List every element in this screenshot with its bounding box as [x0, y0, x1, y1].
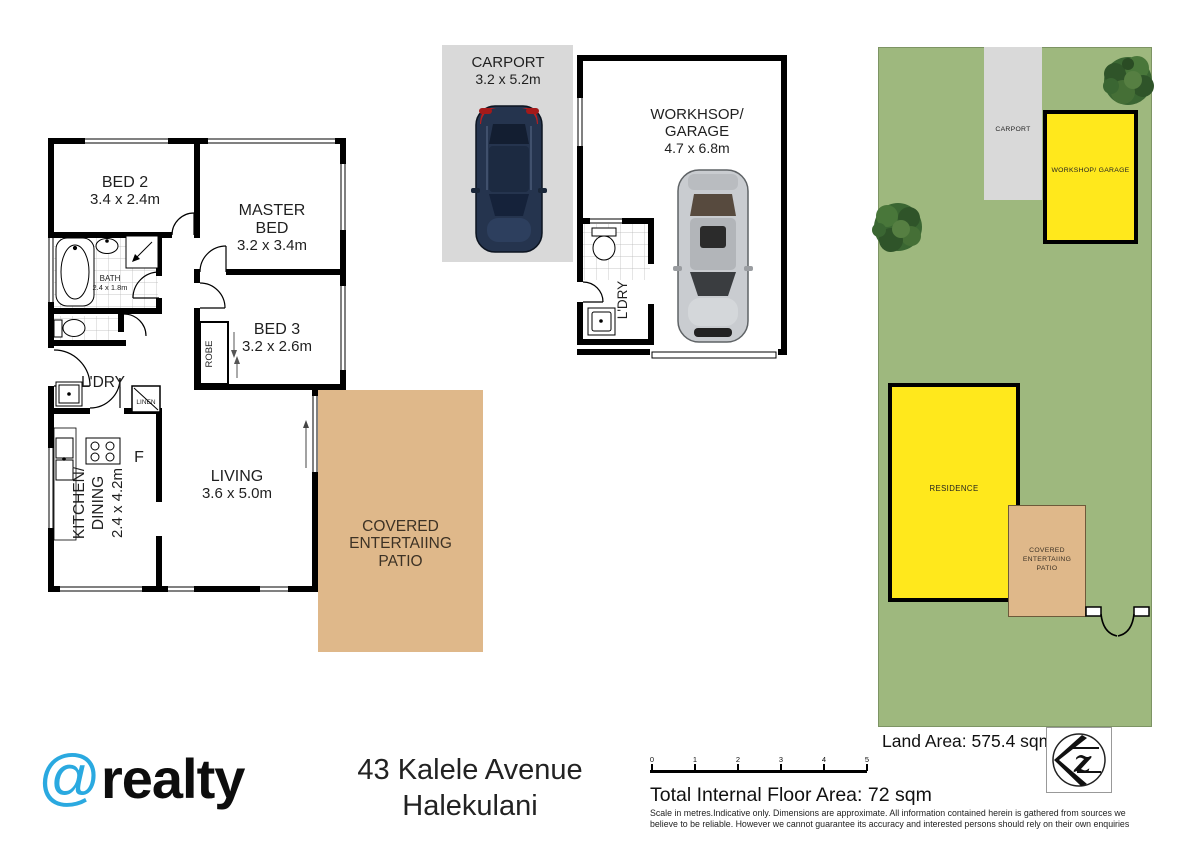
garage-laundry-label: L'DRY: [615, 270, 631, 330]
land-area: Land Area: 575.4 sqm: [882, 731, 1053, 752]
address-line2: Halekulani: [320, 788, 620, 824]
address-line1: 43 Kalele Avenue: [320, 752, 620, 788]
tree-icon: [867, 196, 929, 258]
car-silver-top-view: [673, 170, 753, 342]
gate-symbol: [1082, 603, 1152, 643]
kitchen-dining-label: KITCHEN/ DINING 2.4 x 4.2m: [70, 448, 140, 558]
garage-plan: CARPORT 3.2 x 5.2m WORKHSOP/ GARAGE 4.7 …: [440, 40, 790, 362]
site-covered-patio: COVERED ENTERTAIING PATIO: [1008, 505, 1086, 617]
workshop-garage-label: WORKHSOP/ GARAGE 4.7 x 6.8m: [637, 107, 757, 156]
bed3-label: BED 3 3.2 x 2.6m: [217, 321, 337, 356]
realty-at-icon: @: [38, 743, 101, 812]
carport-label: CARPORT 3.2 x 5.2m: [447, 55, 569, 87]
patio-label: COVERED ENTERTAIING PATIO: [326, 518, 475, 570]
site-plan: CARPORT WORKSHOP/ GARAGE RESIDENCE COVER…: [878, 47, 1152, 727]
scale-bar: 0 1 2 3 4 5: [650, 755, 870, 777]
site-residence: RESIDENCE: [888, 383, 1020, 602]
tree-icon: [1097, 50, 1159, 112]
disclaimer-line1: Scale in metres.Indicative only. Dimensi…: [650, 808, 1155, 818]
site-workshop-garage: WORKSHOP/ GARAGE: [1043, 110, 1138, 244]
living-label: LIVING 3.6 x 5.0m: [177, 468, 297, 503]
bath-label: BATH 2.4 x 1.8m: [75, 275, 145, 292]
bed2-label: BED 2 3.4 x 2.4m: [65, 174, 185, 209]
disclaimer-line2: believe to be reliable. However we canno…: [650, 819, 1155, 829]
site-carport-label: CARPORT: [984, 125, 1042, 134]
linen-label: LINEN: [133, 399, 159, 406]
laundry-label: L'DRY: [63, 374, 143, 391]
car-dark-top-view: [471, 106, 547, 252]
draftsman-logo: z: [1046, 727, 1112, 793]
site-patio-label: COVERED ENTERTAIING PATIO: [1012, 546, 1082, 574]
site-residence-label: RESIDENCE: [892, 485, 1016, 494]
realty-logo-text: realty: [101, 747, 244, 810]
draftsman-logo-icon: z: [1047, 728, 1111, 792]
floorplan-page: COVERED ENTERTAIING PATIO: [0, 0, 1200, 849]
site-carport: CARPORT: [984, 47, 1042, 200]
main-house-plan: BED 2 3.4 x 2.4m MASTER BED 3.2 x 3.4m B…: [48, 138, 346, 592]
svg-text:z: z: [1073, 745, 1092, 780]
site-workshop-label: WORKSHOP/ GARAGE: [1051, 166, 1130, 175]
robe-label: ROBE: [205, 324, 219, 384]
master-bed-label: MASTER BED 3.2 x 3.4m: [227, 202, 317, 255]
total-floor-area: Total Internal Floor Area: 72 sqm: [650, 784, 932, 807]
realty-logo: @realty: [38, 742, 244, 813]
property-address: 43 Kalele Avenue Halekulani: [320, 752, 620, 825]
